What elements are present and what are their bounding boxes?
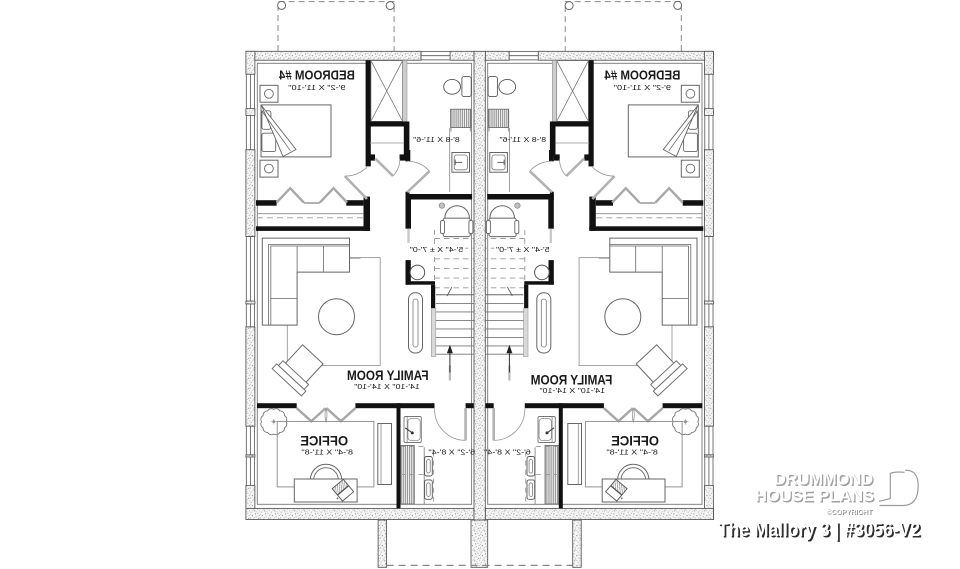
svg-text:14'-10" X 14'-10": 14'-10" X 14'-10" [539,386,605,395]
svg-text:6'-2" X 8'-4": 6'-2" X 8'-4" [484,448,531,457]
svg-text:9'-2" X 11'-10": 9'-2" X 11'-10" [288,83,346,92]
svg-text:8'-4" X 11'-8": 8'-4" X 11'-8" [301,448,353,457]
svg-text:BEDROOM #4: BEDROOM #4 [604,68,680,82]
svg-text:9'-2" X 11'-10": 9'-2" X 11'-10" [613,83,671,92]
svg-text:14'-10" X 14'-10": 14'-10" X 14'-10" [354,382,420,391]
svg-text:6'-2" X 8'-4": 6'-2" X 8'-4" [428,448,475,457]
svg-text:8'-4" X 11'-8": 8'-4" X 11'-8" [606,448,658,457]
svg-text:5'-4" X ± 7'-0": 5'-4" X ± 7'-0" [409,245,463,254]
svg-text:HOUSE PLANS: HOUSE PLANS [755,488,874,505]
svg-text:OFFICE: OFFICE [611,434,659,449]
svg-text:The Mallory 3 | #3056-V2: The Mallory 3 | #3056-V2 [718,520,920,541]
svg-text:5'-4" X ± 7'-0": 5'-4" X ± 7'-0" [496,245,550,254]
svg-text:DRUMMOND: DRUMMOND [774,471,873,489]
svg-text:OFFICE: OFFICE [300,434,348,449]
svg-text:8'-8 X 11'-6": 8'-8 X 11'-6" [499,135,546,144]
svg-text:BEDROOM #4: BEDROOM #4 [279,68,355,82]
svg-text:8'-8 X 11'-6": 8'-8 X 11'-6" [413,135,460,144]
svg-text:©COPYRIGHT: ©COPYRIGHT [826,507,872,516]
